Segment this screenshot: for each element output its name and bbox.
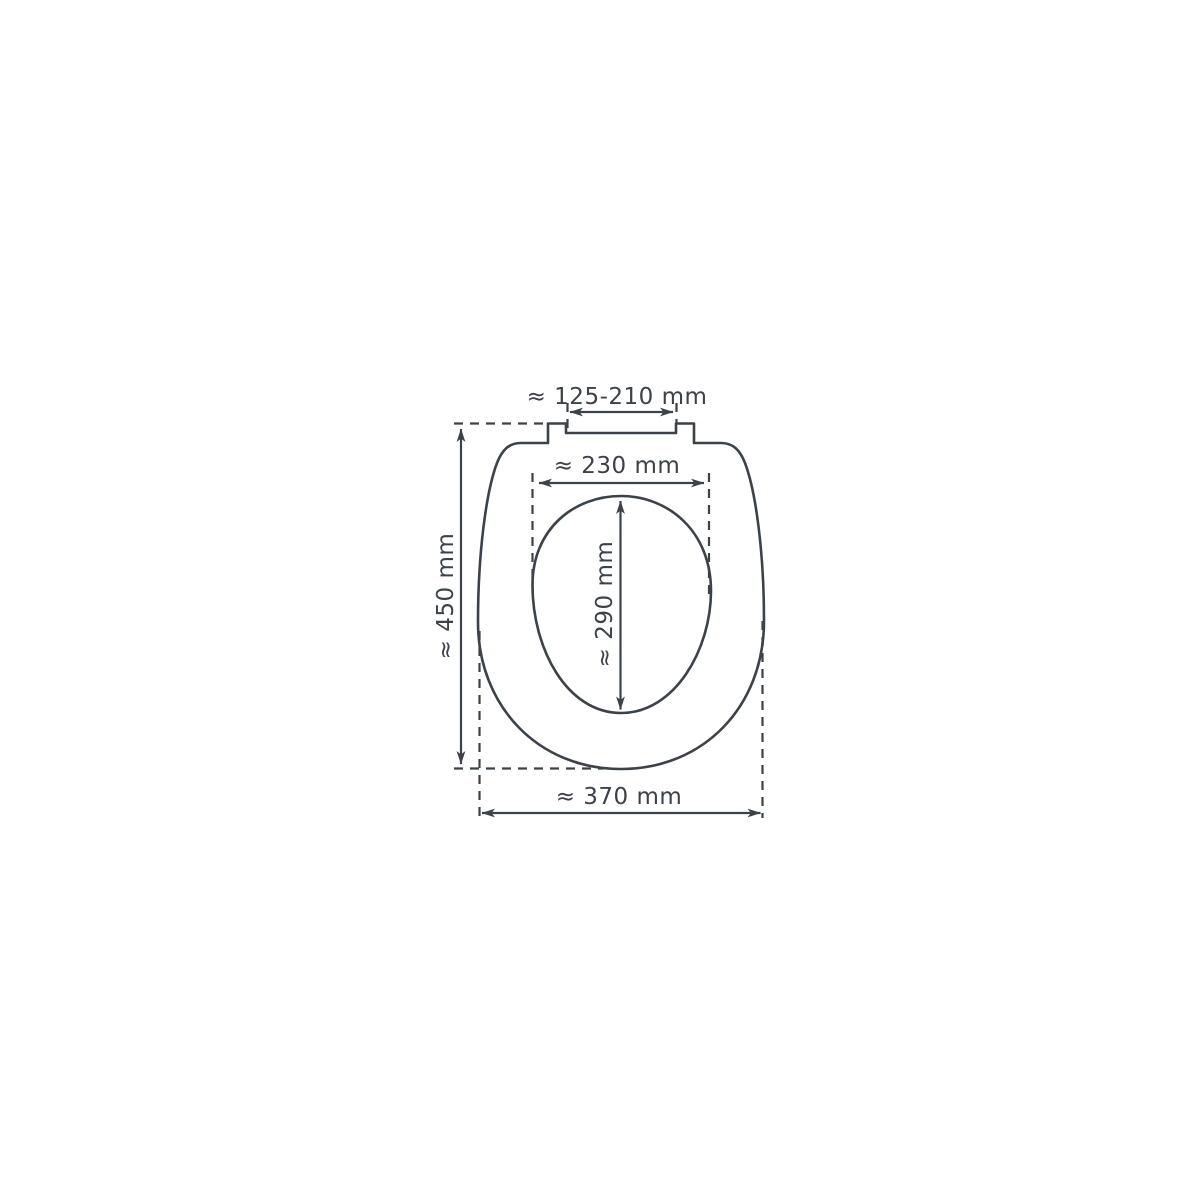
- outer-width-label: ≈ 370 mm: [556, 784, 683, 810]
- dimension-hinge-width: ≈ 125-210 mm: [527, 384, 708, 433]
- hinge-width-label: ≈ 125-210 mm: [527, 384, 708, 410]
- seat-dimension-diagram: ≈ 125-210 mm ≈ 230 mm ≈ 290 mm ≈ 450 mm …: [0, 0, 1200, 1200]
- seat-inner-opening: [533, 496, 712, 713]
- inner-width-label: ≈ 230 mm: [554, 453, 681, 479]
- dimension-inner-length: ≈ 290 mm: [592, 501, 621, 710]
- outer-length-label: ≈ 450 mm: [433, 533, 459, 660]
- inner-length-label: ≈ 290 mm: [592, 541, 618, 668]
- diagram-canvas: ≈ 125-210 mm ≈ 230 mm ≈ 290 mm ≈ 450 mm …: [0, 0, 1200, 1200]
